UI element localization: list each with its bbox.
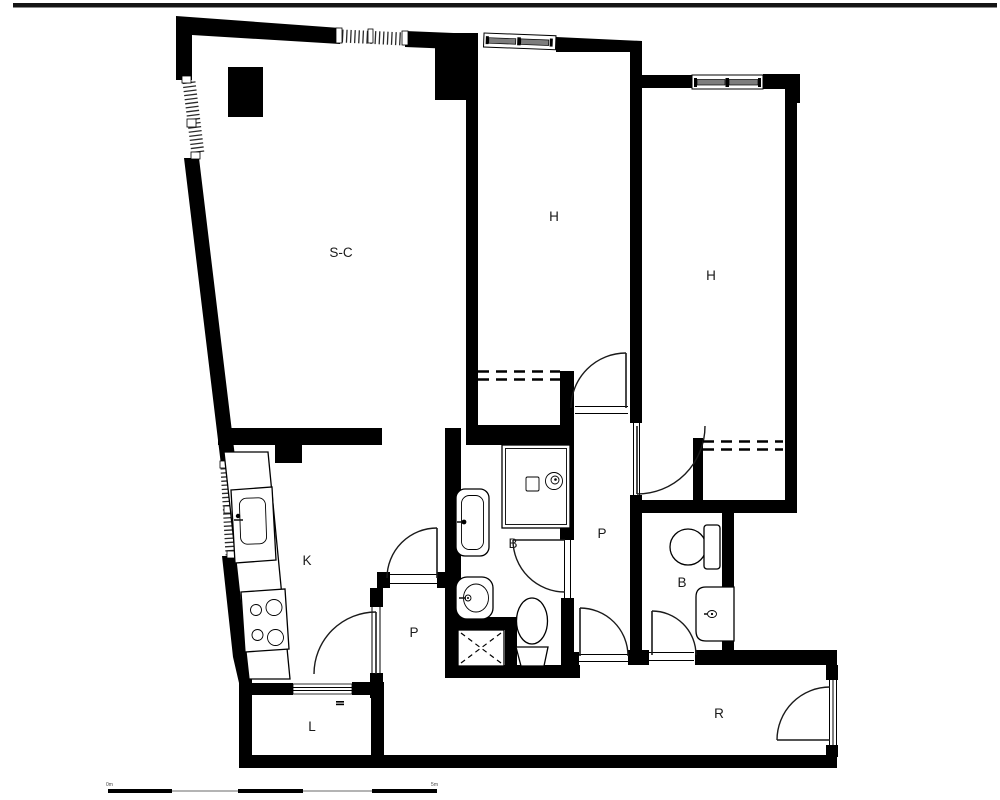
window-bedroom-right-icon [692,75,763,89]
room-label-kitchen: K [302,553,311,568]
room-label-bath-second: B [677,575,686,590]
room-label-entry: R [714,706,724,721]
scale-label-right: 5m [431,782,438,788]
toilet-main-icon [516,598,548,666]
room-label-bedroom-right: H [706,268,716,283]
column-living [228,67,263,117]
top-rule [13,3,997,8]
scale-bar-segment [372,789,437,793]
scale-bar-segment [108,789,172,793]
floorplan-drawing: S-C H H K P P B B L R 0m 5m [0,0,1000,800]
bidet-icon [456,577,493,619]
kitchen-sink-icon [231,487,276,563]
window-laundry-icon [293,684,352,694]
washbasin-main-icon [456,489,489,556]
floorplan-page: S-C H H K P P B B L R 0m 5m [0,0,1000,800]
scale-bar-segment [238,789,303,793]
room-label-hall-center: P [597,526,606,541]
toilet-second-icon [670,525,720,569]
room-label-laundry: L [308,719,316,734]
scale-label-left: 0m [106,782,113,788]
shaft-icon [458,630,504,666]
kitchen-stove-icon [241,589,289,652]
window-bedroom-center-icon [484,33,556,50]
washbasin-second-icon [696,587,734,641]
canvas-background [0,0,1000,800]
room-label-bedroom-center: H [549,209,559,224]
room-label-hall-kitchen: P [409,625,418,640]
shower-icon [502,445,570,528]
room-label-bath-main: B [508,536,517,551]
room-label-living: S-C [329,245,353,260]
